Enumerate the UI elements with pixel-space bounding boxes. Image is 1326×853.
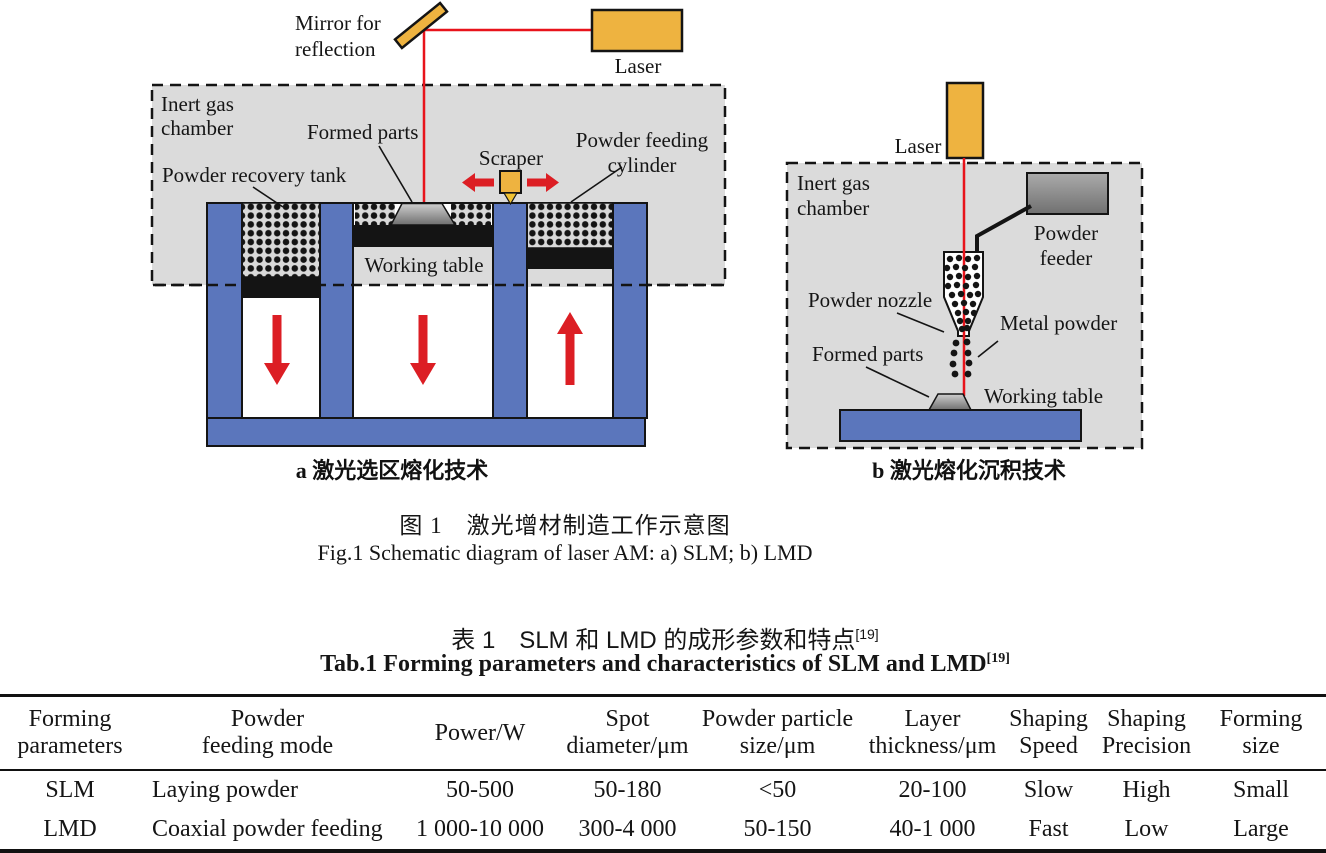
cell-slm-precision: High [1097,771,1196,810]
parameters-table: Forming parameters Powder feeding mode P… [0,694,1326,853]
recovery-tank-piston [242,277,320,298]
build-piston [353,225,493,247]
laser-source-box-a [592,10,682,51]
header-line: Powder particle [702,706,853,733]
header-line: Speed [1019,733,1078,760]
reflection-mirror [395,3,447,48]
header-line: feeding mode [202,733,333,760]
col-header-powder-particle-size: Powder particle size/μm [690,697,865,769]
header-line: diameter/μm [566,733,688,760]
laser-source-box-b [947,83,983,158]
header-line: size [1242,733,1279,760]
column-2 [320,203,353,418]
table-title-zh: 表 1 SLM 和 LMD 的成形参数和特点[19] [451,620,878,655]
col-header-shaping-precision: Shaping Precision [1097,697,1196,769]
table-row-lmd: LMD Coaxial powder feeding 1 000-10 000 … [0,810,1326,849]
header-line: size/μm [740,733,816,760]
col-header-powder-feeding-mode: Powder feeding mode [140,697,395,769]
cell-slm-particle-size: <50 [690,771,865,810]
paper-figure-page: Mirror for reflection Laser Inert gas ch… [0,0,1326,853]
working-table-b [840,410,1081,441]
subcaption-b: b 激光熔化沉积技术 [872,458,1066,483]
col-header-forming-parameters: Forming parameters [0,697,140,769]
label-chamber-b-line2: chamber [797,196,869,220]
label-chamber-a-line1: Inert gas [161,92,234,116]
table-title-en-text: Tab.1 Forming parameters and characteris… [320,651,986,677]
label-metal-powder: Metal powder [1000,311,1117,335]
col-header-layer-thickness: Layer thickness/μm [865,697,1000,769]
header-line: Layer [905,706,961,733]
table-title-zh-ref: [19] [855,626,878,642]
subcaption-a: a 激光选区熔化技术 [296,458,489,483]
cell-lmd-spot-diameter: 300-4 000 [565,810,690,849]
cell-slm-size: Small [1196,771,1326,810]
label-working-table-b: Working table [984,384,1103,408]
label-chamber-b-line1: Inert gas [797,171,870,195]
column-1 [207,203,242,418]
cell-lmd-speed: Fast [1000,810,1097,849]
header-line: parameters [17,733,122,760]
figure-1-diagrams: Mirror for reflection Laser Inert gas ch… [0,0,1326,495]
header-line: Forming [29,706,112,733]
cell-slm-speed: Slow [1000,771,1097,810]
figure-caption-en: Fig.1 Schematic diagram of laser AM: a) … [318,540,813,566]
label-powder-feeder-line1: Powder [1034,221,1098,245]
powder-layer-left [355,204,395,225]
table-title-en: Tab.1 Forming parameters and characteris… [320,651,1010,678]
cell-slm-name: SLM [0,771,140,810]
header-line: Powder [231,706,304,733]
machine-base [207,418,645,446]
column-3 [493,203,527,418]
label-scraper: Scraper [479,146,543,170]
header-line: Spot [605,706,649,733]
table-title-en-ref: [19] [987,651,1010,666]
header-line: Precision [1102,733,1191,760]
cell-lmd-precision: Low [1097,810,1196,849]
label-formed-parts-a: Formed parts [307,120,418,144]
label-powder-feeder-line2: feeder [1040,246,1092,270]
header-line: Shaping [1107,706,1186,733]
label-laser-b: Laser [895,134,942,158]
scraper-body [500,171,521,193]
label-formed-parts-b: Formed parts [812,342,923,366]
feeding-cylinder-piston [527,248,613,269]
label-recovery-tank: Powder recovery tank [162,163,347,187]
feeding-cylinder-powder [527,203,613,248]
figure-caption-zh: 图 1 激光增材制造工作示意图 [399,506,730,540]
label-feeding-cylinder-line1: Powder feeding [576,128,709,152]
cell-lmd-name: LMD [0,810,140,849]
cell-lmd-size: Large [1196,810,1326,849]
cell-slm-feeding-mode: Laying powder [140,771,395,810]
label-mirror-line1: Mirror for [295,11,381,35]
col-header-shaping-speed: Shaping Speed [1000,697,1097,769]
col-header-power: Power/W [395,697,565,769]
label-chamber-a-line2: chamber [161,116,233,140]
header-line: thickness/μm [869,733,997,760]
powder-layer-right [451,204,491,225]
header-line: Forming [1220,706,1303,733]
label-feeding-cylinder-line2: cylinder [608,153,677,177]
cell-lmd-particle-size: 50-150 [690,810,865,849]
recovery-tank-powder [242,203,320,277]
header-line: Shaping [1009,706,1088,733]
label-mirror-line2: reflection [295,37,376,61]
diagram-lmd: Laser Inert gas chamber Powder feeder Po… [787,83,1142,483]
column-4 [613,203,647,418]
cell-lmd-power: 1 000-10 000 [395,810,565,849]
label-powder-nozzle: Powder nozzle [808,288,932,312]
powder-feeder-box [1027,173,1108,214]
label-laser-a: Laser [615,54,662,78]
cell-slm-layer-thickness: 20-100 [865,771,1000,810]
cell-lmd-layer-thickness: 40-1 000 [865,810,1000,849]
col-header-forming-size: Forming size [1196,697,1326,769]
col-header-spot-diameter: Spot diameter/μm [565,697,690,769]
table-header-row: Forming parameters Powder feeding mode P… [0,697,1326,771]
table-title-zh-text: 表 1 SLM 和 LMD 的成形参数和特点 [451,627,855,654]
diagram-slm: Mirror for reflection Laser Inert gas ch… [152,3,725,483]
cell-slm-spot-diameter: 50-180 [565,771,690,810]
cell-slm-power: 50-500 [395,771,565,810]
header-line: Power/W [435,720,526,747]
table-row-slm: SLM Laying powder 50-500 50-180 <50 20-1… [0,771,1326,810]
cell-lmd-feeding-mode: Coaxial powder feeding [140,810,395,849]
label-working-table-a: Working table [364,253,483,277]
